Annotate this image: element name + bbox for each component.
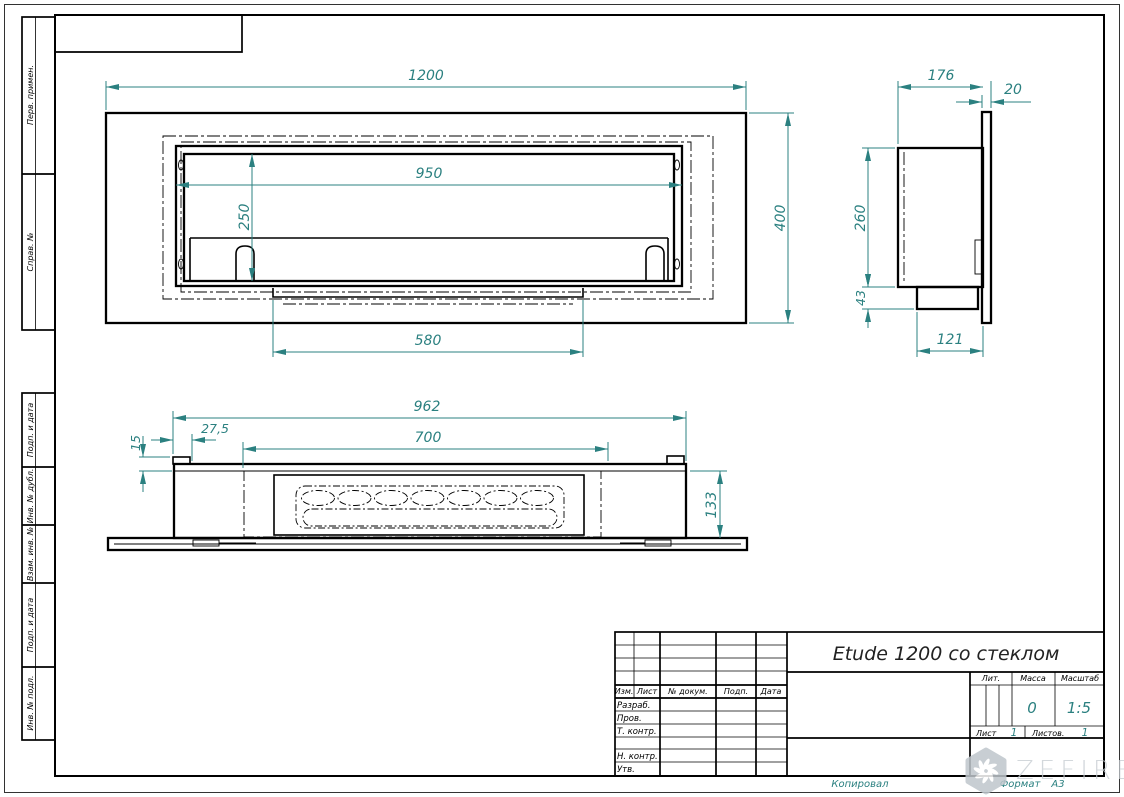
lit-label: Лит. [981, 674, 1000, 683]
col-izm: Изм. [615, 687, 634, 696]
role-tkontr: Т. контр. [617, 727, 657, 737]
dim-side-base-height: 43 [853, 290, 868, 306]
plan-view-dimensions: 962 700 27,5 15 133 [128, 399, 727, 538]
scale-label: Масштаб [1061, 674, 1099, 683]
zefire-logo-icon [968, 750, 1004, 792]
watermark-text: ZEFIRE [1016, 756, 1124, 786]
title-block: Изм. Лист № докум. Подп. Дата Разраб. Пр… [615, 632, 1104, 776]
sheet-frame [5, 5, 1120, 793]
side-view-dimensions: 176 20 260 43 121 [853, 68, 1031, 357]
sidebar-label: Справ. № [26, 233, 35, 272]
sheet-value: 1 [1011, 727, 1018, 739]
bottom-step [273, 288, 583, 297]
dim-side-body-height: 260 [853, 205, 869, 232]
drawing-title: Etude 1200 со стеклом [833, 643, 1060, 665]
dim-side-glass: 20 [1004, 82, 1022, 98]
role-prov: Пров. [617, 714, 642, 724]
col-data: Дата [760, 687, 782, 696]
dim-plan-tab-height: 15 [128, 435, 143, 451]
role-razrab: Разраб. [617, 701, 650, 711]
role-utv: Утв. [617, 765, 635, 775]
col-list: Лист [636, 687, 658, 696]
base-box [917, 287, 978, 309]
mass-value: 0 [1027, 699, 1037, 717]
scale-value: 1:5 [1067, 699, 1091, 717]
plan-view [108, 456, 747, 550]
sidebar-label: Инв. № дубл. [26, 469, 35, 524]
plan-right-tab [667, 456, 684, 464]
sidebar-label: Подп. и дата [26, 598, 35, 653]
burner-box-front [190, 238, 668, 281]
sidebar-label: Взам. инв. № [26, 527, 35, 581]
dim-front-width: 1200 [408, 68, 444, 84]
dim-front-opening-width: 950 [416, 166, 443, 182]
dim-front-opening-height: 250 [237, 204, 253, 231]
dim-plan-burner-width: 700 [415, 430, 442, 446]
dim-plan-width: 962 [414, 399, 441, 415]
col-dokum: № докум. [667, 687, 707, 696]
copied-label: Копировал [831, 779, 889, 790]
sheets-label: Листов. [1031, 729, 1064, 738]
left-tab [236, 246, 254, 281]
sidebar-label: Подп. и дата [26, 403, 35, 458]
dim-side-depth: 176 [928, 68, 955, 84]
sidebar: Перв. примен. Справ. № Подп. и дата Инв.… [22, 17, 55, 740]
role-nkontr: Н. контр. [617, 752, 658, 762]
sidebar-label: Инв. № подл. [26, 675, 35, 730]
drawing-svg: Перв. примен. Справ. № Подп. и дата Инв.… [0, 0, 1124, 797]
burner-slot [303, 509, 557, 526]
mass-label: Масса [1020, 674, 1046, 683]
side-view [898, 112, 991, 323]
sheet-label: Лист [975, 729, 997, 738]
sheets-value: 1 [1082, 727, 1089, 739]
dim-front-height: 400 [773, 205, 789, 232]
watermark: ZEFIRE [968, 750, 1124, 792]
sidebar-label: Перв. примен. [26, 65, 35, 125]
top-left-box [55, 15, 242, 52]
dim-front-base-width: 580 [415, 333, 442, 349]
dim-plan-depth: 133 [704, 492, 720, 519]
col-podp: Подп. [724, 687, 748, 696]
front-view [106, 113, 746, 323]
drawing-sheet: Перв. примен. Справ. № Подп. и дата Инв.… [0, 0, 1124, 797]
dim-plan-offset: 27,5 [201, 421, 229, 436]
right-tab [646, 246, 664, 281]
dim-side-base-depth: 121 [937, 332, 964, 348]
